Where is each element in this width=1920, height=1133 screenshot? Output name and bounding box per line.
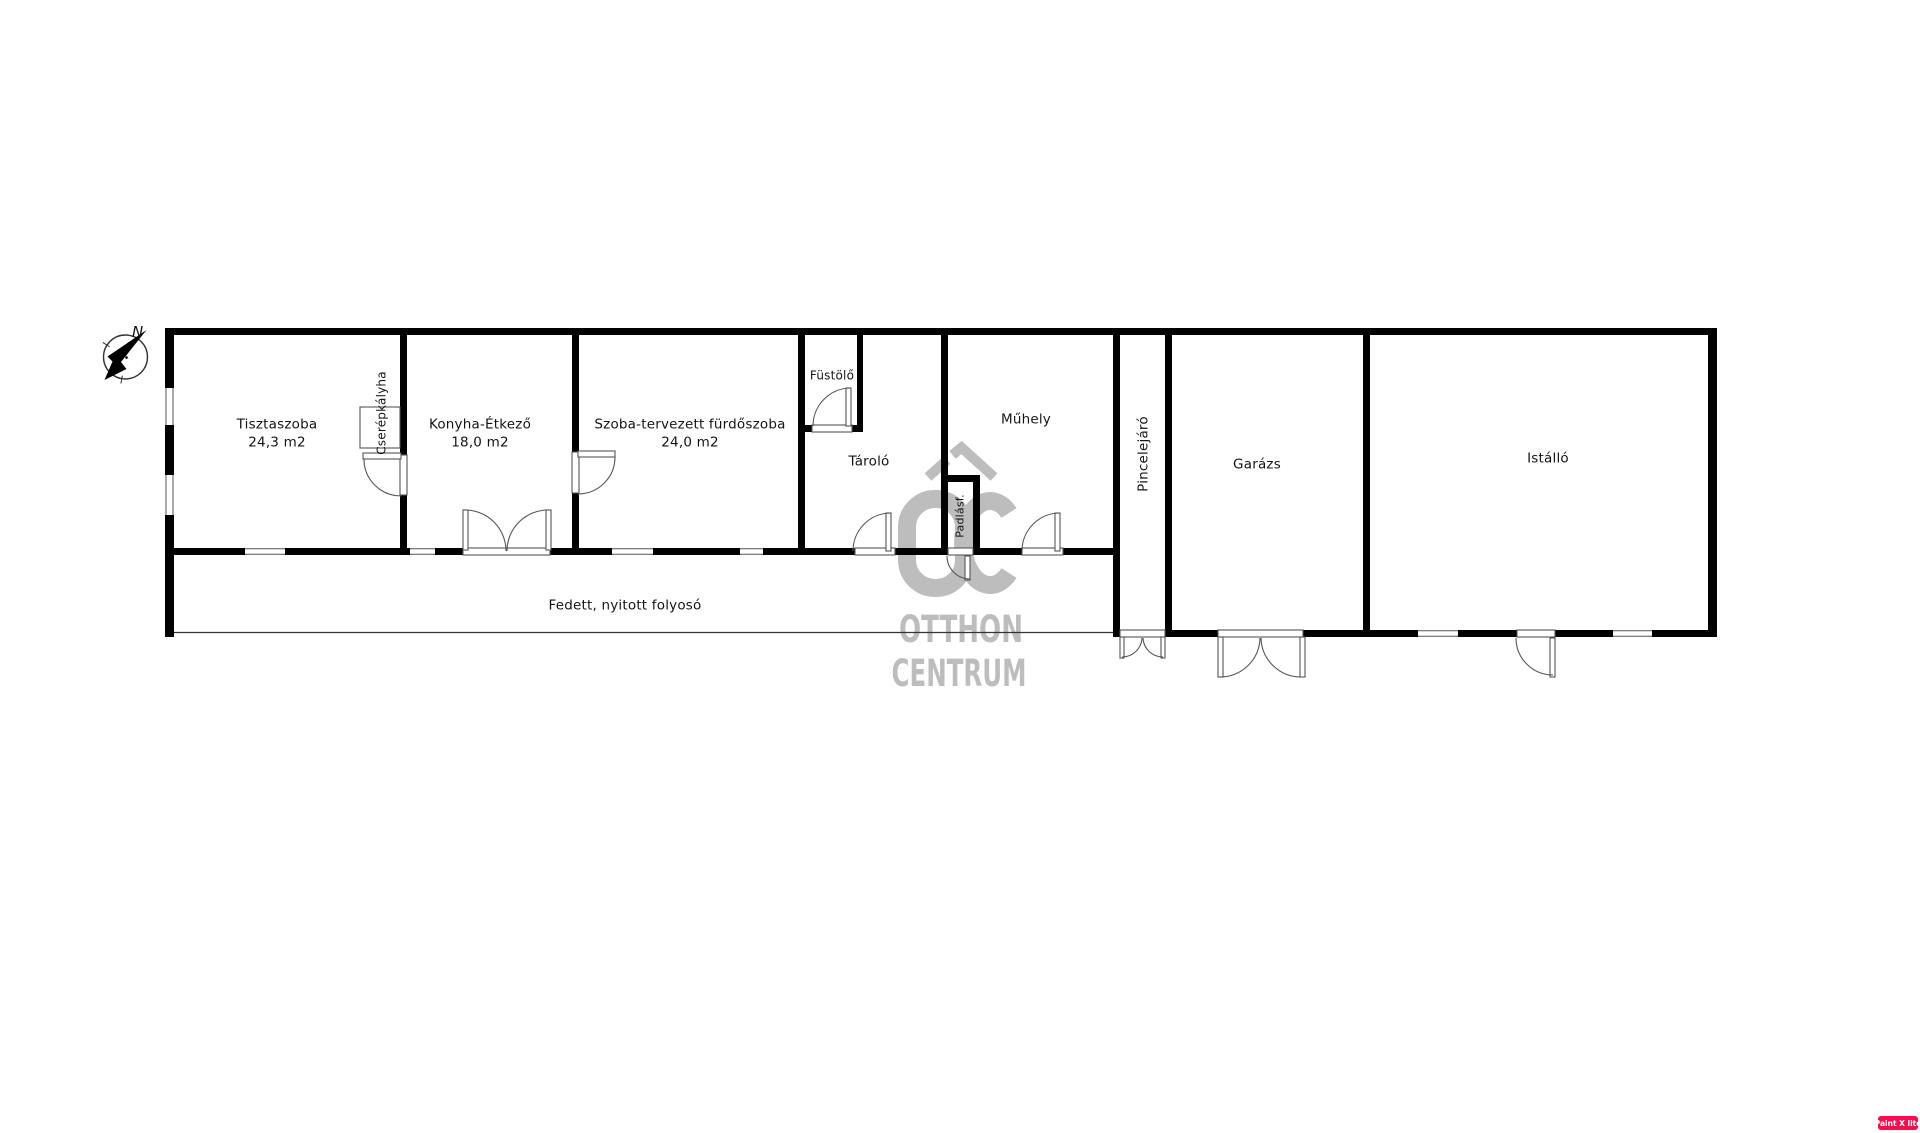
room-label-szoba-furdoszoba: Szoba-tervezett fürdőszoba 24,0 m2 <box>594 417 785 452</box>
room-name: Szoba-tervezett fürdőszoba <box>594 417 785 435</box>
door-garazs-double <box>1218 630 1305 677</box>
room-area: 24,0 m2 <box>594 434 785 452</box>
window-furdoszoba-1 <box>612 548 653 555</box>
room-label-fustolo: Füstölő <box>810 367 854 385</box>
corridor-label: Fedett, nyitott folyosó <box>548 597 701 615</box>
window-konyha <box>410 548 435 555</box>
door-furdoszoba <box>572 451 615 494</box>
tile-stove-label: Cserépkályha <box>373 371 391 455</box>
room-name: Műhely <box>1001 411 1051 429</box>
door-istallo <box>1516 630 1555 677</box>
room-label-tisztaszoba: Tisztaszoba 24,3 m2 <box>237 417 318 452</box>
paint-x-lite-badge-label: Paint X lite <box>1875 1119 1920 1128</box>
room-label-tarolo: Tároló <box>848 453 889 471</box>
door-tisztaszoba <box>363 453 407 496</box>
door-muhely <box>1022 513 1063 555</box>
room-label-pincelejaro: Pincelejáró <box>1135 416 1153 492</box>
room-area: 24,3 m2 <box>237 434 318 452</box>
window-left-1 <box>165 388 174 425</box>
room-name: Konyha-Étkező <box>429 417 531 435</box>
window-tisztaszoba <box>245 548 285 555</box>
floorplan-canvas: OTTHON CENTRUM <box>0 0 1920 1133</box>
room-name: Tisztaszoba <box>237 417 318 435</box>
room-label-istallo: Istálló <box>1527 450 1569 468</box>
room-name: Istálló <box>1527 450 1569 468</box>
window-istallo-1 <box>1418 630 1458 637</box>
room-area: 18,0 m2 <box>429 434 531 452</box>
floorplan-drawing: OTTHON CENTRUM <box>0 0 1920 1133</box>
watermark-brand-line2: CENTRUM <box>892 652 1027 695</box>
room-name: Pincelejáró <box>1135 416 1153 492</box>
room-name: Padlásf. <box>951 494 969 538</box>
door-pincelejaro-double <box>1120 630 1165 658</box>
door-fustolo <box>812 388 852 432</box>
window-left-2 <box>165 475 174 515</box>
room-name: Tároló <box>848 453 889 471</box>
compass-center-dot <box>125 356 128 359</box>
window-istallo-2 <box>1613 630 1652 637</box>
watermark-brand-line1: OTTHON <box>899 608 1023 651</box>
watermark-roof-icon <box>928 448 994 478</box>
door-tarolo <box>853 513 895 555</box>
room-name: Füstölő <box>810 367 854 385</box>
room-label-konyha-etkezo: Konyha-Étkező 18,0 m2 <box>429 417 531 452</box>
door-konyha-double <box>463 510 551 555</box>
compass-north-label: N <box>132 323 143 341</box>
window-furdoszoba-2 <box>740 548 763 555</box>
compass-rose: N <box>103 323 148 384</box>
room-label-muhely: Műhely <box>1001 411 1051 429</box>
tile-stove-label-text: Cserépkályha <box>373 371 391 455</box>
room-label-garazs: Garázs <box>1233 456 1281 474</box>
room-label-padlasfeljaro: Padlásf. <box>951 494 969 538</box>
room-name: Garázs <box>1233 456 1281 474</box>
corridor-label-text: Fedett, nyitott folyosó <box>548 597 701 615</box>
paint-x-lite-badge: Paint X lite <box>1878 1116 1918 1130</box>
